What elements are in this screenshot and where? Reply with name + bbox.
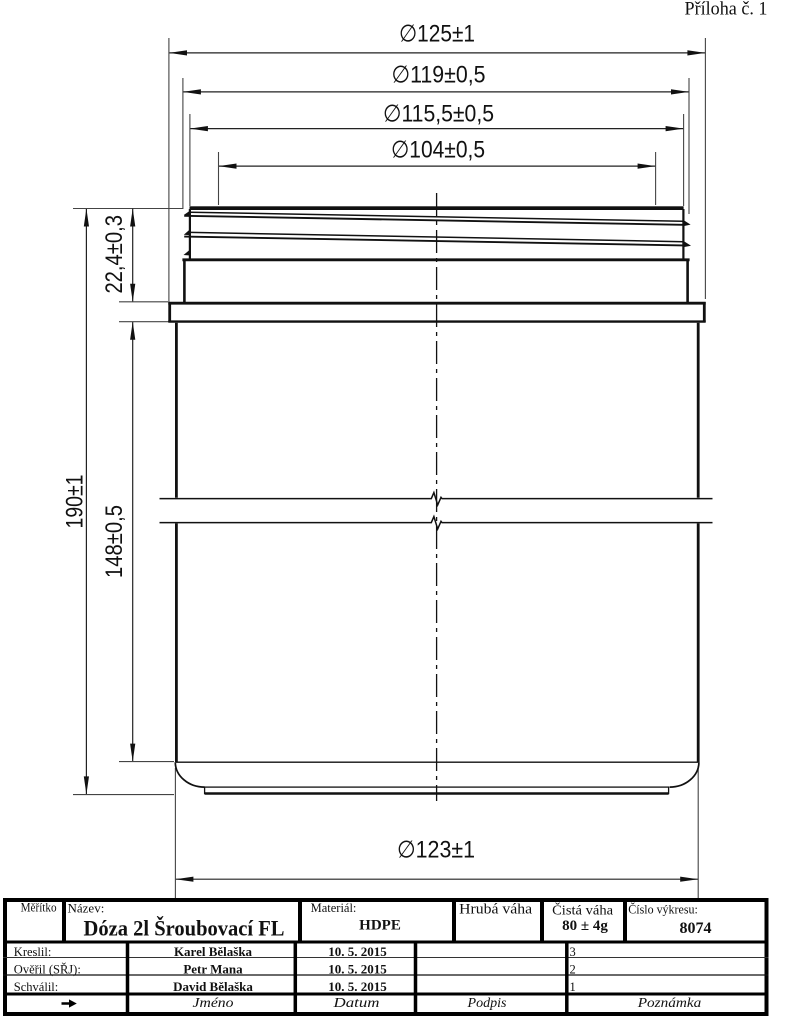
svg-text:8074: 8074 — [680, 920, 712, 937]
svg-text:Hrubá váha: Hrubá váha — [459, 902, 532, 918]
svg-text:Petr Mana: Petr Mana — [183, 962, 243, 977]
svg-text:Kreslil:: Kreslil: — [14, 945, 52, 959]
svg-text:2: 2 — [570, 963, 576, 977]
svg-text:148±0,5: 148±0,5 — [101, 505, 128, 578]
svg-text:David Bělaška: David Bělaška — [173, 979, 253, 994]
svg-text:10. 5. 2015: 10. 5. 2015 — [328, 962, 387, 977]
svg-text:∅123±1: ∅123±1 — [397, 837, 475, 864]
svg-text:Název:: Název: — [68, 901, 105, 916]
svg-text:Podpis: Podpis — [466, 996, 507, 1011]
svg-text:∅125±1: ∅125±1 — [399, 21, 475, 48]
svg-text:Poznámka: Poznámka — [637, 996, 702, 1011]
svg-text:190±1: 190±1 — [61, 475, 88, 529]
svg-text:1: 1 — [570, 980, 576, 994]
svg-text:Jméno: Jméno — [193, 996, 234, 1011]
svg-text:10. 5. 2015: 10. 5. 2015 — [328, 944, 387, 959]
svg-text:Karel Bělaška: Karel Bělaška — [174, 944, 253, 959]
svg-text:Číslo výkresu:: Číslo výkresu: — [628, 902, 698, 917]
svg-text:Schválil:: Schválil: — [14, 980, 58, 994]
svg-text:Příloha č. 1: Příloha č. 1 — [685, 0, 768, 20]
svg-text:80 ± 4g: 80 ± 4g — [562, 918, 608, 934]
svg-text:HDPE: HDPE — [359, 918, 401, 934]
svg-text:22,4±0,3: 22,4±0,3 — [101, 215, 128, 293]
svg-text:10. 5. 2015: 10. 5. 2015 — [328, 979, 387, 994]
svg-text:Datum: Datum — [332, 996, 379, 1011]
svg-text:Měřítko: Měřítko — [21, 901, 57, 915]
svg-text:Ověřil (SŘJ):: Ověřil (SŘJ): — [14, 963, 81, 977]
svg-text:3: 3 — [570, 945, 576, 959]
svg-text:∅119±0,5: ∅119±0,5 — [392, 62, 486, 89]
svg-text:Čistá váha: Čistá váha — [552, 903, 613, 918]
svg-text:∅104±0,5: ∅104±0,5 — [391, 137, 485, 164]
svg-text:Dóza 2l Šroubovací FL: Dóza 2l Šroubovací FL — [84, 916, 285, 941]
svg-text:∅115,5±0,5: ∅115,5±0,5 — [383, 100, 494, 127]
svg-text:Materiál:: Materiál: — [311, 901, 357, 915]
